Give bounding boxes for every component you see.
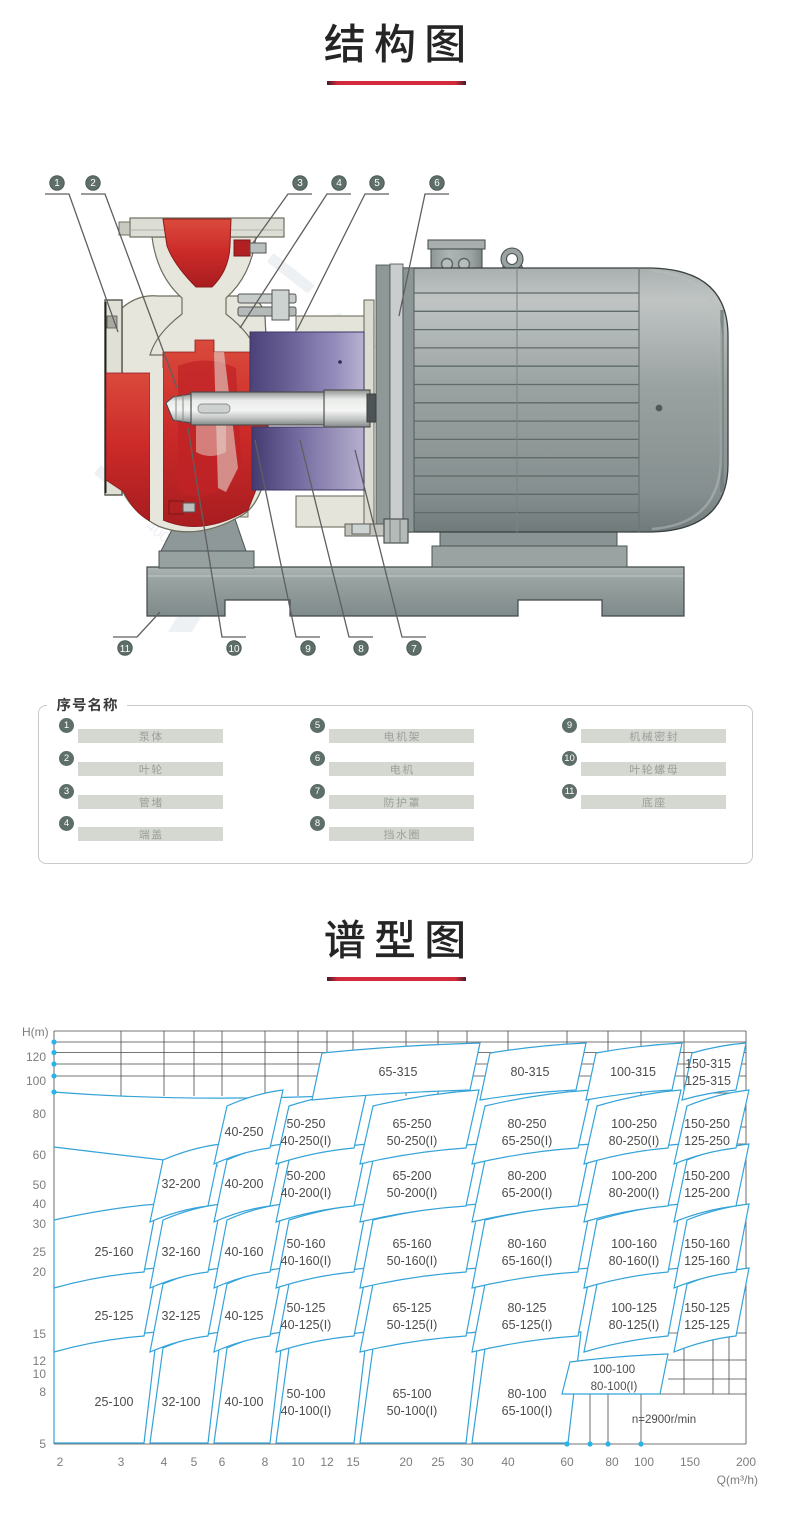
svg-text:50-250: 50-250 xyxy=(287,1117,326,1131)
svg-text:2: 2 xyxy=(57,1455,64,1469)
svg-text:80: 80 xyxy=(33,1107,47,1121)
svg-text:40-100(I): 40-100(I) xyxy=(281,1404,332,1418)
svg-text:65-250: 65-250 xyxy=(393,1117,432,1131)
svg-text:40-160(I): 40-160(I) xyxy=(281,1254,332,1268)
svg-text:80: 80 xyxy=(605,1455,619,1469)
svg-text:150-125: 150-125 xyxy=(684,1301,730,1315)
svg-text:125-200: 125-200 xyxy=(684,1186,730,1200)
svg-text:50-125(I): 50-125(I) xyxy=(387,1318,438,1332)
svg-text:50-250(I): 50-250(I) xyxy=(387,1134,438,1148)
svg-text:50-100: 50-100 xyxy=(287,1387,326,1401)
svg-text:8: 8 xyxy=(262,1455,269,1469)
svg-text:80-125: 80-125 xyxy=(508,1301,547,1315)
svg-text:3: 3 xyxy=(118,1455,125,1469)
svg-text:12: 12 xyxy=(33,1354,47,1368)
svg-text:15: 15 xyxy=(346,1455,360,1469)
svg-text:6: 6 xyxy=(434,178,440,189)
svg-text:50-200(I): 50-200(I) xyxy=(387,1186,438,1200)
svg-text:30: 30 xyxy=(33,1217,47,1231)
svg-text:11: 11 xyxy=(120,644,131,655)
svg-text:32-100: 32-100 xyxy=(162,1395,201,1409)
svg-text:1: 1 xyxy=(54,178,60,189)
svg-text:80-200: 80-200 xyxy=(508,1169,547,1183)
svg-text:4: 4 xyxy=(336,178,342,189)
svg-text:7: 7 xyxy=(411,644,417,655)
svg-text:50-160(I): 50-160(I) xyxy=(387,1254,438,1268)
svg-text:65-160(I): 65-160(I) xyxy=(502,1254,553,1268)
svg-text:40: 40 xyxy=(501,1455,515,1469)
svg-text:150-250: 150-250 xyxy=(684,1117,730,1131)
svg-text:150-200: 150-200 xyxy=(684,1169,730,1183)
svg-text:25: 25 xyxy=(33,1245,47,1259)
svg-text:40: 40 xyxy=(33,1197,47,1211)
svg-text:80-100(I): 80-100(I) xyxy=(591,1381,638,1393)
svg-text:100: 100 xyxy=(634,1455,654,1469)
svg-text:65-125: 65-125 xyxy=(393,1301,432,1315)
svg-text:50-160: 50-160 xyxy=(287,1237,326,1251)
svg-text:32-160: 32-160 xyxy=(162,1245,201,1259)
svg-text:50: 50 xyxy=(33,1178,47,1192)
svg-text:65-160: 65-160 xyxy=(393,1237,432,1251)
svg-text:65-200(I): 65-200(I) xyxy=(502,1186,553,1200)
svg-text:125-250: 125-250 xyxy=(684,1134,730,1148)
svg-text:32-200: 32-200 xyxy=(162,1177,201,1191)
svg-text:80-125(I): 80-125(I) xyxy=(609,1318,660,1332)
svg-text:Q(m³/h): Q(m³/h) xyxy=(717,1473,758,1487)
svg-text:60: 60 xyxy=(33,1148,47,1162)
svg-text:80-250(I): 80-250(I) xyxy=(609,1134,660,1148)
svg-text:65-315: 65-315 xyxy=(379,1065,418,1079)
svg-text:80-100: 80-100 xyxy=(508,1387,547,1401)
svg-text:8: 8 xyxy=(39,1385,46,1399)
svg-text:40-200: 40-200 xyxy=(225,1177,264,1191)
svg-text:80-160(I): 80-160(I) xyxy=(609,1254,660,1268)
svg-text:80-160: 80-160 xyxy=(508,1237,547,1251)
svg-text:20: 20 xyxy=(33,1265,47,1279)
svg-text:50-125: 50-125 xyxy=(287,1301,326,1315)
svg-text:120: 120 xyxy=(26,1050,46,1064)
svg-text:5: 5 xyxy=(39,1437,46,1451)
svg-text:40-160: 40-160 xyxy=(225,1245,264,1259)
svg-text:100-125: 100-125 xyxy=(611,1301,657,1315)
svg-text:100-250: 100-250 xyxy=(611,1117,657,1131)
svg-text:n=2900r/min: n=2900r/min xyxy=(632,1414,696,1426)
svg-text:25-125: 25-125 xyxy=(95,1309,134,1323)
svg-text:4: 4 xyxy=(161,1455,168,1469)
svg-text:80-250: 80-250 xyxy=(508,1117,547,1131)
svg-text:125-315: 125-315 xyxy=(685,1074,731,1088)
svg-text:10: 10 xyxy=(33,1367,47,1381)
svg-text:8: 8 xyxy=(358,644,364,655)
svg-text:100-100: 100-100 xyxy=(593,1364,635,1376)
svg-text:H(m): H(m) xyxy=(22,1025,49,1039)
svg-text:150-160: 150-160 xyxy=(684,1237,730,1251)
svg-text:65-100: 65-100 xyxy=(393,1387,432,1401)
svg-text:200: 200 xyxy=(736,1455,756,1469)
svg-text:150-315: 150-315 xyxy=(685,1057,731,1071)
svg-text:100: 100 xyxy=(26,1074,46,1088)
svg-text:40-200(I): 40-200(I) xyxy=(281,1186,332,1200)
svg-text:10: 10 xyxy=(228,644,240,655)
svg-text:40-125(I): 40-125(I) xyxy=(281,1318,332,1332)
svg-text:65-250(I): 65-250(I) xyxy=(502,1134,553,1148)
svg-text:25: 25 xyxy=(431,1455,445,1469)
svg-text:40-125: 40-125 xyxy=(225,1309,264,1323)
svg-text:40-100: 40-100 xyxy=(225,1395,264,1409)
svg-text:100-200: 100-200 xyxy=(611,1169,657,1183)
svg-text:125-160: 125-160 xyxy=(684,1254,730,1268)
svg-text:12: 12 xyxy=(320,1455,334,1469)
svg-text:2: 2 xyxy=(90,178,96,189)
svg-text:150: 150 xyxy=(680,1455,700,1469)
svg-text:40-250(I): 40-250(I) xyxy=(281,1134,332,1148)
svg-text:65-200: 65-200 xyxy=(393,1169,432,1183)
svg-text:100-315: 100-315 xyxy=(610,1065,656,1079)
svg-text:60: 60 xyxy=(560,1455,574,1469)
svg-text:3: 3 xyxy=(297,178,303,189)
svg-text:15: 15 xyxy=(33,1327,47,1341)
svg-text:5: 5 xyxy=(374,178,380,189)
svg-text:30: 30 xyxy=(460,1455,474,1469)
svg-text:50-100(I): 50-100(I) xyxy=(387,1404,438,1418)
svg-text:100-160: 100-160 xyxy=(611,1237,657,1251)
svg-text:125-125: 125-125 xyxy=(684,1318,730,1332)
svg-text:65-100(I): 65-100(I) xyxy=(502,1404,553,1418)
svg-text:32-125: 32-125 xyxy=(162,1309,201,1323)
svg-text:80-200(I): 80-200(I) xyxy=(609,1186,660,1200)
svg-text:65-125(I): 65-125(I) xyxy=(502,1318,553,1332)
svg-text:80-315: 80-315 xyxy=(511,1065,550,1079)
svg-text:25-100: 25-100 xyxy=(95,1395,134,1409)
svg-text:40-250: 40-250 xyxy=(225,1125,264,1139)
svg-text:9: 9 xyxy=(305,644,311,655)
svg-text:5: 5 xyxy=(191,1455,198,1469)
svg-text:6: 6 xyxy=(219,1455,226,1469)
svg-text:10: 10 xyxy=(291,1455,305,1469)
svg-text:25-160: 25-160 xyxy=(95,1245,134,1259)
svg-text:50-200: 50-200 xyxy=(287,1169,326,1183)
svg-text:20: 20 xyxy=(399,1455,413,1469)
